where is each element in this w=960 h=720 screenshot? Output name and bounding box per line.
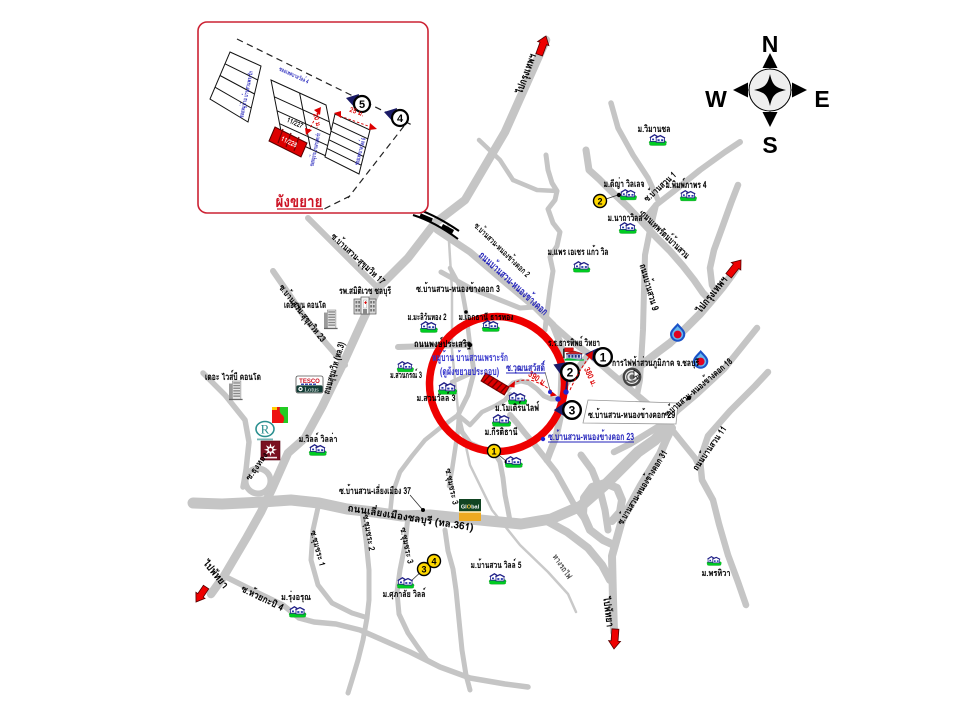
svg-text:N: N (762, 31, 779, 57)
svg-text:2: 2 (567, 366, 574, 380)
svg-text:GlObal: GlObal (461, 505, 480, 511)
svg-text:2: 2 (597, 196, 602, 206)
svg-text:Lotus: Lotus (304, 386, 319, 393)
svg-text:R: R (261, 422, 270, 437)
svg-text:3: 3 (569, 404, 576, 418)
svg-text:5: 5 (359, 99, 365, 111)
svg-text:S: S (762, 132, 777, 158)
svg-text:3: 3 (421, 564, 426, 574)
svg-text:1: 1 (600, 351, 607, 365)
svg-text:4: 4 (431, 556, 436, 566)
svg-text:E: E (814, 86, 829, 112)
svg-text:1: 1 (491, 446, 496, 456)
svg-text:4: 4 (397, 113, 404, 125)
svg-text:W: W (705, 86, 727, 112)
